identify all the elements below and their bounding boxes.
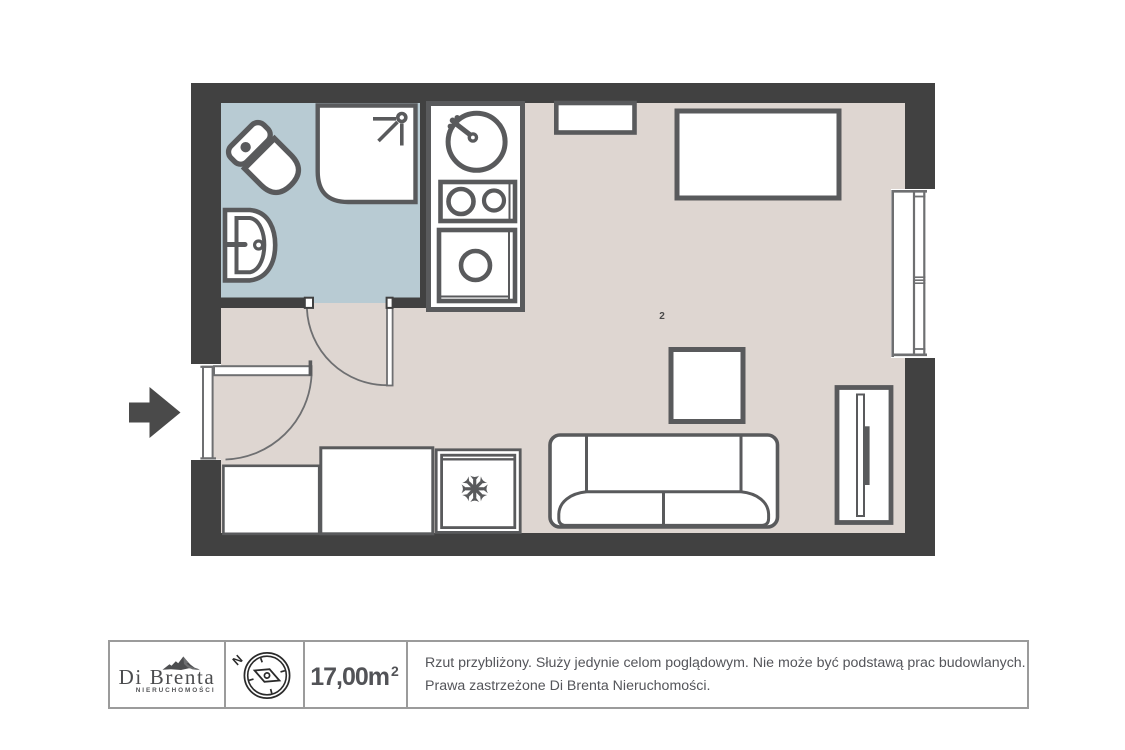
svg-text:N: N bbox=[230, 652, 246, 668]
svg-text:2: 2 bbox=[659, 311, 665, 322]
